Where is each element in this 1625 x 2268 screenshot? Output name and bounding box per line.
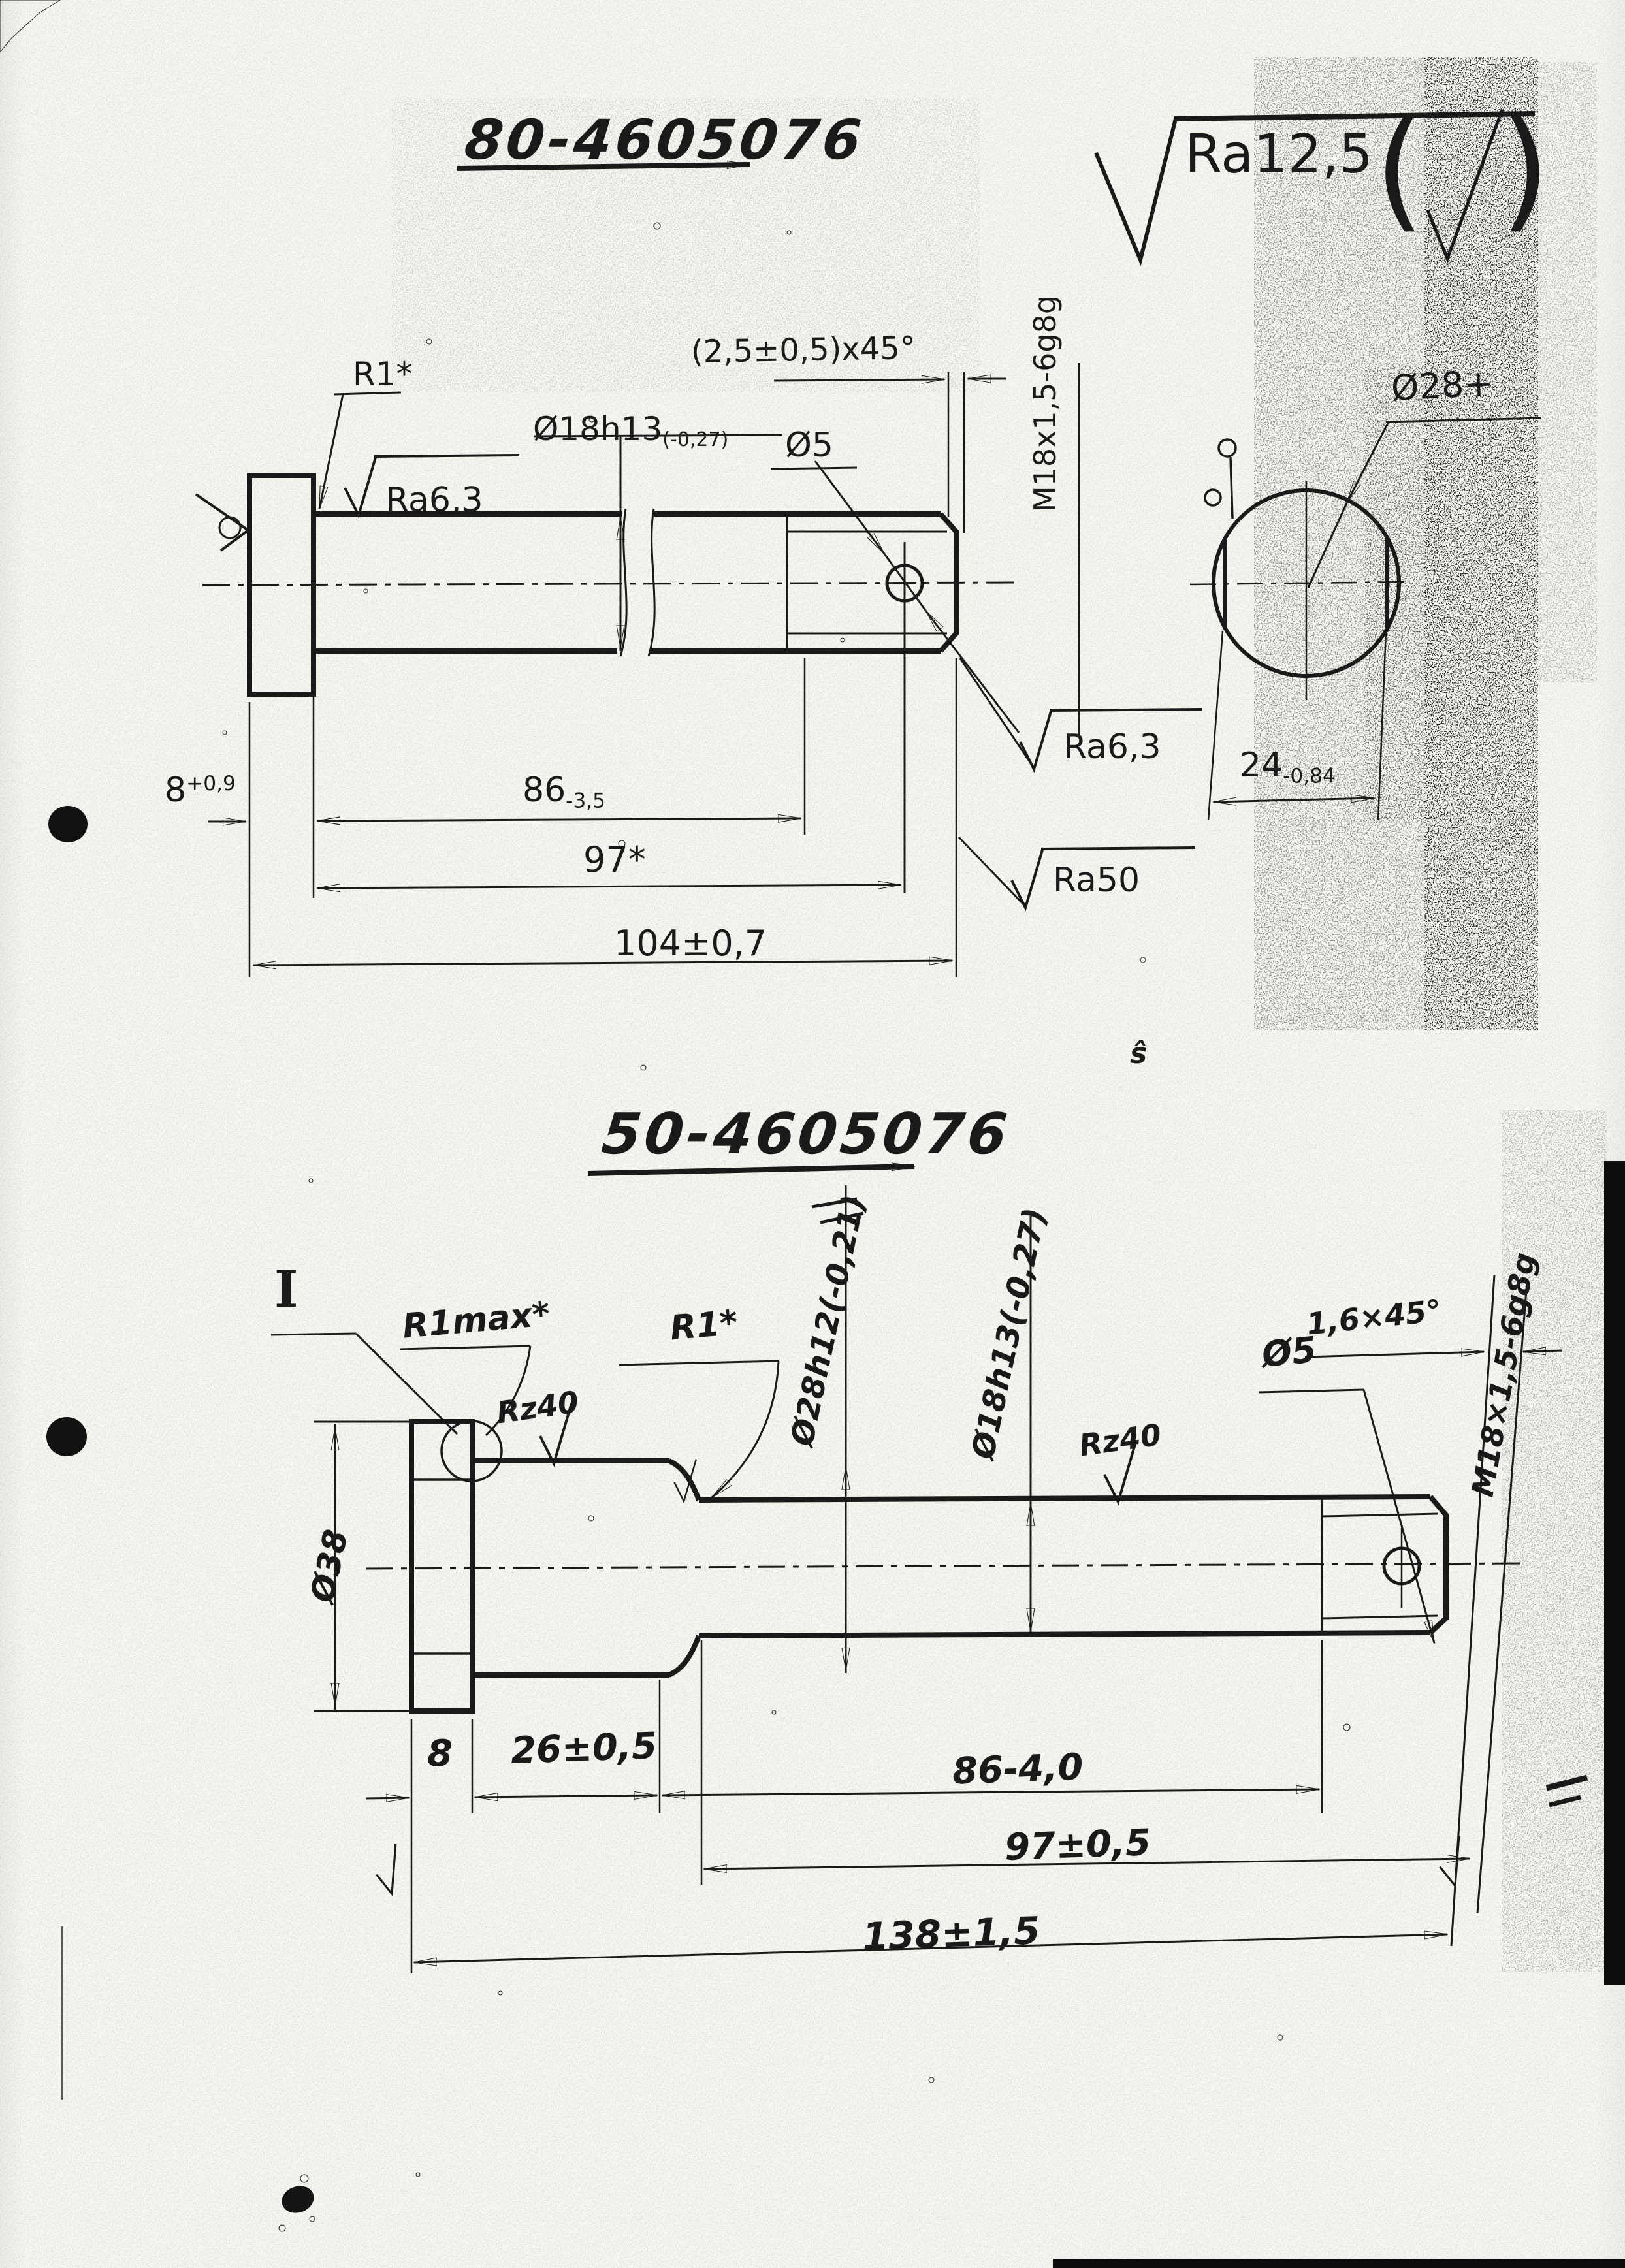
thread-length-dim-label: 86-4,0: [952, 1749, 1084, 1791]
general-roughness-label: Ra12,5: [1185, 128, 1373, 182]
punch-hole-top: [48, 806, 88, 842]
section-mark: I: [274, 1264, 298, 1315]
shaft-dia-label: Ø18h13(-0,27): [533, 413, 728, 450]
head-dia-label: Ø28+: [1391, 366, 1494, 406]
surface-roughness-thread-label: Ra6,3: [1063, 730, 1161, 764]
roughness-paren-open: (: [1374, 104, 1425, 235]
surface-roughness-shaft-label: Ra6,3: [385, 483, 483, 517]
scanned-drawing-sheet: 80-4605076 Ra12,5 ( ) (2,5±0,5)x45° M18x…: [0, 0, 1625, 2268]
roughness-paren-close: ): [1500, 104, 1551, 235]
bottom-drawing-number: 50-4605076: [599, 1106, 1012, 1162]
punch-hole-bottom: [46, 1417, 87, 1456]
surface-roughness-relief-label: Ra50: [1053, 863, 1140, 897]
stray-scribble: ŝ: [1130, 1040, 1147, 1068]
fillet-radius-label: R1*: [669, 1306, 739, 1346]
total-length-dim-label: 104±0,7: [614, 926, 767, 961]
top-drawing-number: 80-4605076: [462, 112, 867, 167]
head-length-dim-label: 8: [427, 1736, 453, 1772]
shoulder-length-dim-label: 26±0,5: [510, 1728, 658, 1770]
bottom-edge-strip: [1053, 2259, 1625, 2268]
head-length-dim-label: 8+0,9: [165, 773, 236, 807]
thread-spec-label: M18x1,5-6g8g: [1030, 295, 1060, 512]
hole-dia-label: Ø5: [785, 428, 833, 462]
fillet-radius-label: R1*: [353, 358, 413, 391]
chamfer-dim-label: (2,5±0,5)x45°: [691, 332, 916, 368]
shaft-length-dim-label: 86-3,5: [523, 773, 605, 812]
right-edge-strip: [1604, 1161, 1625, 1985]
shaft-length-dim-label: 97±0,5: [1004, 1825, 1151, 1866]
hole-position-dim-label: 97*: [583, 842, 646, 878]
across-flats-label: 24-0,84: [1240, 748, 1336, 787]
total-length-dim-label: 138±1,5: [861, 1911, 1040, 1955]
